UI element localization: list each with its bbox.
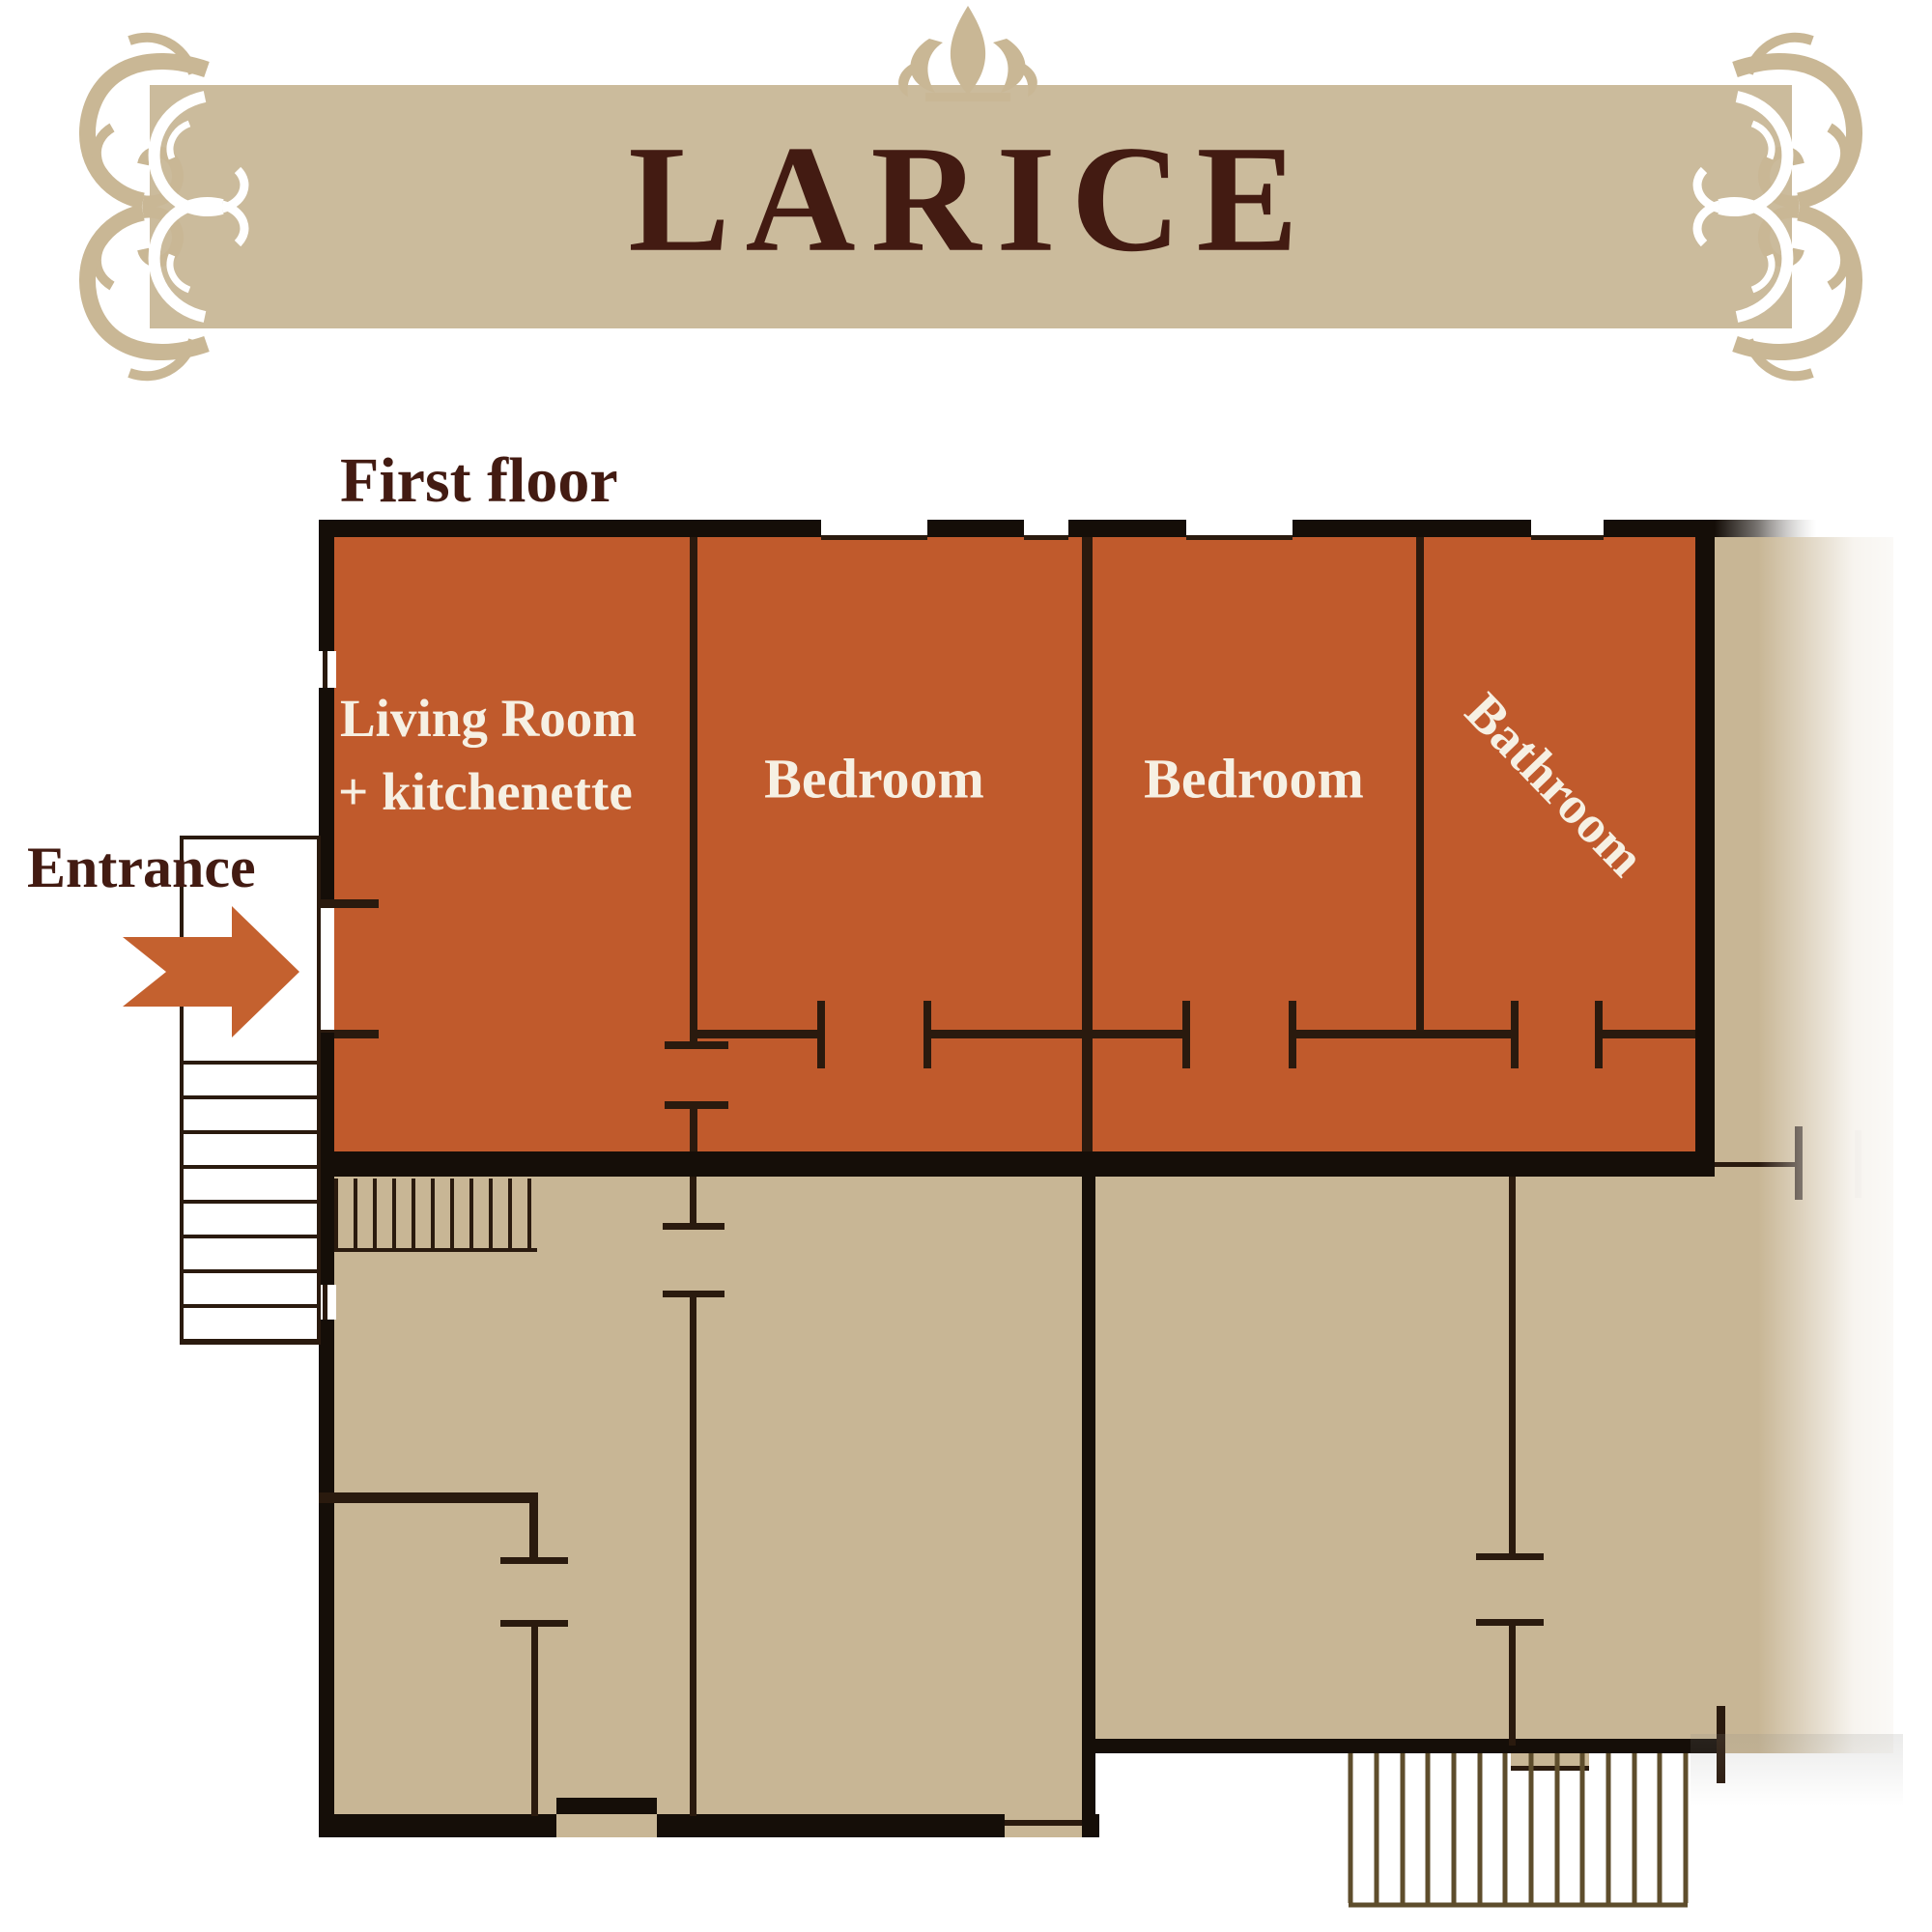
ground-bottom-wall-right (1090, 1739, 1722, 1753)
storage-room-wall (319, 1492, 537, 1503)
door-jamb (1476, 1619, 1544, 1626)
page-title: LARICE (628, 112, 1313, 288)
porch-outline (182, 838, 319, 1343)
right-fade (1758, 502, 1932, 1922)
apartment-area (334, 537, 1695, 1151)
door-jamb (665, 1041, 728, 1049)
apartment-left-wall (319, 520, 334, 651)
wall-bedroom-bedroom (1082, 537, 1093, 1151)
staircase-hatch-icon (1349, 1753, 1688, 1905)
rear-landing (1511, 1753, 1589, 1766)
door-jamb (1595, 1001, 1603, 1068)
rear-door-sill (556, 1798, 657, 1814)
door-jamb (1182, 1001, 1190, 1068)
door-jamb (817, 1001, 825, 1068)
door-jamb (923, 1001, 931, 1068)
ground-floor-fill (319, 1177, 1715, 1837)
entrance-door-jamb (319, 899, 379, 908)
door-jamb (500, 1620, 568, 1627)
ground-main-divider (1082, 1177, 1095, 1837)
door-jamb (1476, 1553, 1544, 1560)
bottom-wall-window (1005, 1820, 1090, 1826)
door-jamb (663, 1291, 724, 1297)
room-label-bedroom-left: Bedroom (764, 747, 984, 811)
ground-left-wall (319, 1320, 334, 1837)
floor-label: First floor (340, 444, 618, 518)
apartment-fill (334, 537, 1695, 1151)
floor-plan-page: LARICE First floor Entrance Living Room … (0, 0, 1932, 1932)
door-jamb (1289, 1001, 1296, 1068)
ground-bottom-wall (319, 1814, 556, 1837)
room-label-bedroom-right: Bedroom (1144, 747, 1364, 811)
entrance-porch (182, 838, 319, 1343)
rear-landing-edge (1511, 1766, 1589, 1771)
room-label-kitchenette: + kitchenette (338, 761, 633, 822)
door-jamb (500, 1557, 568, 1564)
apartment-top-wall (319, 520, 1715, 537)
wall-living-bedroom (690, 537, 697, 1034)
door-jamb (665, 1101, 728, 1109)
apartment-bottom-wall (319, 1151, 1715, 1177)
drop-shadow (1690, 1734, 1903, 1806)
apartment-right-wall (1695, 520, 1715, 1177)
door-jamb (663, 1223, 724, 1230)
room-label-living: Living Room (340, 688, 637, 749)
entrance-label: Entrance (27, 835, 256, 901)
floor-plan-graphic (0, 0, 1932, 1932)
wall-bedroom-bathroom (1416, 537, 1424, 1034)
door-jamb (1511, 1001, 1519, 1068)
